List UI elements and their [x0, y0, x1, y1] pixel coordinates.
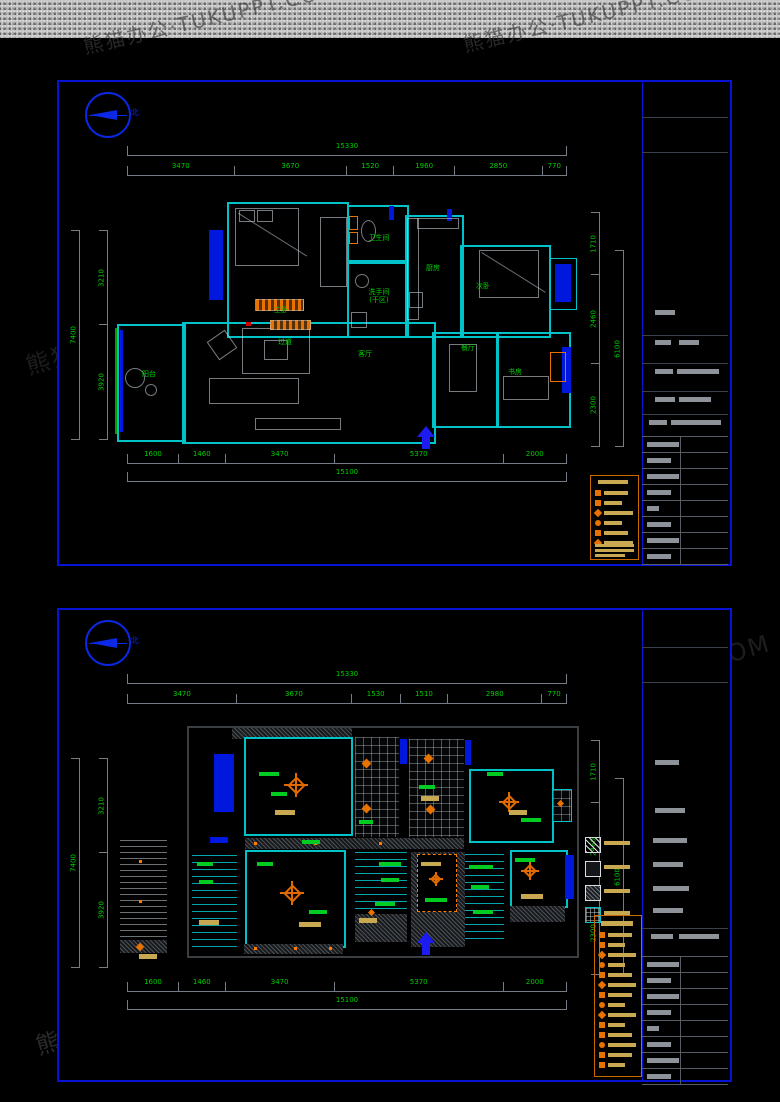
swatch-label	[604, 889, 630, 893]
dim-segment: 3920	[99, 853, 108, 968]
titleblock-text	[655, 397, 675, 402]
ceiling-balcony-louver	[120, 840, 167, 940]
dim-label: 1600	[128, 979, 178, 986]
titleblock-table-row	[642, 453, 728, 469]
dim-segment: 6100	[615, 250, 624, 447]
titleblock-text	[679, 340, 699, 345]
dim-segment: 1960	[394, 166, 455, 176]
titleblock-text	[651, 934, 673, 939]
titleblock-line	[642, 152, 728, 153]
dim-segment: 7400	[71, 758, 80, 968]
dim-segment: 3670	[235, 166, 348, 176]
balcony-table	[145, 384, 157, 396]
ceiling-note-tan	[139, 954, 157, 959]
ceiling-note	[471, 885, 489, 889]
spot-light	[139, 860, 142, 863]
label-study: 书房	[508, 368, 522, 376]
tv-static-strip	[0, 0, 780, 38]
legend-row	[595, 498, 634, 507]
dim-label: 1600	[128, 451, 178, 458]
titleblock-line	[642, 335, 728, 336]
study-cabinet	[550, 352, 566, 382]
ceiling-band	[510, 906, 565, 922]
dim-segment: 1460	[179, 982, 226, 992]
label-dry-area: 洗手间 (干区)	[369, 288, 390, 304]
dim-segment: 1520	[347, 166, 394, 176]
dim-label: 1510	[401, 691, 448, 698]
legend-box	[594, 915, 642, 1077]
bed-secondary	[479, 250, 539, 298]
tv-cabinet	[255, 418, 341, 430]
titleblock-table-row	[642, 957, 728, 973]
legend-row	[599, 1050, 637, 1059]
dim-label: 2300	[590, 396, 597, 414]
dim-label: 3470	[128, 163, 234, 170]
titleblock-table-row	[642, 1021, 728, 1037]
dim-segment: 3920	[99, 325, 108, 440]
ceiling-note	[359, 820, 373, 824]
dim-segment: 5370	[335, 982, 504, 992]
stove	[409, 292, 423, 308]
ceiling-note	[259, 772, 279, 776]
dim-segment: 3470	[226, 454, 335, 464]
legend-row	[599, 1040, 637, 1049]
dim-label: 3920	[98, 901, 105, 919]
bath-fixture	[349, 232, 358, 244]
bath-fixture	[349, 216, 358, 230]
ceiling-note-tan	[275, 810, 295, 815]
wardrobe	[320, 217, 347, 287]
swatch-solid	[585, 861, 601, 877]
chandelier-icon	[280, 881, 304, 905]
dim-segment: 3210	[99, 230, 108, 325]
legend-title	[601, 921, 633, 926]
titleblock-text	[653, 908, 683, 913]
titleblock-line	[642, 391, 728, 392]
legend-row	[599, 970, 637, 979]
dim-label: 7400	[70, 326, 77, 344]
dim-segment: 2300	[591, 364, 600, 447]
dim-label: 5370	[335, 451, 503, 458]
dim-segment: 770	[542, 694, 567, 704]
legend-row	[599, 960, 637, 969]
legend-rows	[596, 929, 640, 1070]
sofa	[209, 378, 299, 404]
dim-label: 1520	[347, 163, 393, 170]
north-compass-icon	[85, 620, 131, 666]
titleblock-line	[642, 363, 728, 364]
ceiling-entry-strips	[192, 855, 237, 950]
north-compass-icon	[85, 92, 131, 138]
legend-row	[599, 1000, 637, 1009]
dim-row-top: 3470 3670 1530 1510 2980 770	[127, 694, 567, 704]
washer	[351, 312, 367, 328]
ceiling-note	[309, 910, 327, 914]
legend-row	[599, 1020, 637, 1029]
ceiling-note	[381, 878, 399, 882]
spot-light	[254, 842, 257, 845]
dim-label: 6100	[614, 868, 621, 886]
label-bedroom2: 次卧	[476, 282, 490, 290]
ceiling-note-tan	[359, 918, 377, 923]
pillow	[257, 210, 273, 222]
legend-row	[595, 488, 634, 497]
titleblock-text	[655, 760, 679, 765]
dim-col-right-overall: 6100	[615, 250, 624, 447]
dim-label: 1460	[179, 451, 225, 458]
legend-row	[599, 990, 637, 999]
spot-light	[294, 947, 297, 950]
dim-label: 3670	[237, 691, 351, 698]
ceiling-note	[419, 785, 435, 789]
ceiling-plan-sheet: 北 15330 3470 3670 1530 1510 2980 770 160…	[57, 608, 732, 1082]
label-master: 主卧	[274, 306, 288, 314]
swatch-label	[604, 865, 630, 869]
ceiling-note-tan	[421, 862, 441, 866]
label-dining: 餐厅	[461, 344, 475, 352]
shoe-cabinet	[270, 320, 311, 330]
titleblock-table-row	[642, 1069, 728, 1085]
dim-row-bottom: 1600 1460 3470 5370 2000	[127, 982, 567, 992]
window-bath	[389, 206, 394, 220]
ceiling-note	[271, 792, 287, 796]
titleblock-text	[679, 397, 711, 402]
legend-row	[599, 940, 637, 949]
dim-label: 3670	[235, 163, 347, 170]
ceiling-tile-kitchen	[409, 739, 464, 837]
dim-label: 1960	[394, 163, 454, 170]
dim-segment: 1460	[179, 454, 226, 464]
balcony-window-line	[115, 328, 117, 434]
dim-total-bottom: 15100	[127, 1000, 567, 1010]
spot-light	[329, 947, 332, 950]
dim-segment: 5370	[335, 454, 504, 464]
titleblock-table-row	[642, 469, 728, 485]
swatch-hatch	[585, 837, 601, 853]
label-kitchen: 厨房	[426, 264, 440, 272]
dim-label: 15100	[128, 997, 566, 1004]
swatch-label	[604, 841, 630, 845]
ceiling-band	[245, 838, 464, 849]
legend-note	[595, 554, 625, 557]
dim-label: 1530	[352, 691, 400, 698]
titleblock-table-row	[642, 549, 728, 565]
dim-segment: 15100	[127, 472, 567, 482]
dim-label: 1710	[590, 235, 597, 253]
ceiling-note-tan	[199, 920, 219, 925]
dim-label: 3470	[226, 979, 334, 986]
titleblock-text	[653, 862, 683, 867]
dim-label: 3470	[226, 451, 334, 458]
dim-segment: 2980	[448, 694, 542, 704]
legend-note	[595, 549, 634, 552]
dim-segment: 1510	[401, 694, 449, 704]
north-label: 北	[131, 109, 139, 117]
legend-box	[590, 475, 639, 560]
legend-rows	[592, 487, 637, 548]
window-slot	[400, 739, 407, 764]
titleblock-line	[642, 647, 728, 648]
spot-light	[139, 900, 142, 903]
spot-light	[254, 947, 257, 950]
ceiling-note	[469, 865, 493, 869]
dim-label: 7400	[70, 854, 77, 872]
legend-title	[598, 480, 628, 484]
dim-total-bottom: 15100	[127, 472, 567, 482]
titleblock-text	[671, 420, 721, 425]
titleblock-line	[642, 682, 728, 683]
titleblock-line	[642, 928, 728, 929]
north-label: 北	[131, 637, 139, 645]
dim-segment: 15330	[127, 674, 567, 684]
dim-label: 3210	[98, 797, 105, 815]
dim-segment: 1530	[352, 694, 401, 704]
dim-segment: 2850	[455, 166, 543, 176]
dim-segment: 2000	[504, 982, 567, 992]
dim-label: 770	[542, 691, 566, 698]
dim-col-left-overall: 7400	[71, 758, 80, 968]
titleblock-text	[653, 838, 687, 843]
chandelier-icon	[521, 862, 539, 880]
titleblock-table-row	[642, 485, 728, 501]
ceiling-note-tan	[509, 810, 527, 815]
legend-row	[599, 1030, 637, 1039]
red-marker	[246, 322, 251, 326]
dim-segment: 15100	[127, 1000, 567, 1010]
dim-segment: 7400	[71, 230, 80, 440]
titleblock-line	[642, 117, 728, 118]
titleblock-text	[655, 808, 685, 813]
swatch-speckle	[585, 885, 601, 901]
dim-label: 2000	[504, 979, 566, 986]
window-slot	[210, 837, 228, 843]
dim-label: 15330	[128, 143, 566, 150]
dim-segment: 3210	[99, 758, 108, 853]
dim-row-top: 3470 3670 1520 1960 2850 770	[127, 166, 567, 176]
titleblock-table-row	[642, 1053, 728, 1069]
dim-label: 3210	[98, 269, 105, 287]
dim-segment: 1600	[127, 454, 179, 464]
titleblock-table-row	[642, 501, 728, 517]
dim-col-left-overall: 7400	[71, 230, 80, 440]
ceiling-note	[302, 840, 320, 844]
dim-label: 1710	[590, 763, 597, 781]
dim-segment: 770	[543, 166, 567, 176]
kitchen-counter-top	[417, 218, 459, 229]
window-slot	[565, 855, 574, 899]
legend-row	[599, 930, 637, 939]
window-master	[209, 230, 223, 300]
chandelier-icon	[499, 792, 519, 812]
compass-needle-icon	[90, 638, 117, 648]
dim-col-left: 3210 3920	[99, 230, 108, 440]
balcony-window-glass	[120, 330, 123, 432]
ceiling-note	[515, 858, 535, 862]
titleblock-table-row	[642, 989, 728, 1005]
ceiling-note	[257, 862, 273, 866]
window-frame	[549, 258, 577, 310]
dim-label: 15330	[128, 671, 566, 678]
dim-label: 2850	[455, 163, 542, 170]
dim-total-top: 15330	[127, 674, 567, 684]
ceiling-note	[521, 818, 541, 822]
titleblock-table	[642, 436, 728, 565]
label-balcony: 阳台	[142, 370, 156, 378]
legend-row	[599, 980, 637, 989]
floor-plan-sheet: 北 15330 3470 3670 1520 1960 2850 770 160…	[57, 80, 732, 566]
legend-row	[595, 528, 634, 537]
legend-row	[599, 1010, 637, 1019]
dim-label: 770	[543, 163, 566, 170]
dim-col-right: 1710 2460 2300	[591, 212, 600, 447]
ceiling-note	[197, 862, 213, 866]
titleblock-text	[677, 369, 719, 374]
titleblock-text	[655, 369, 673, 374]
label-bath: 卫生间	[369, 234, 390, 242]
entry-arrow-icon	[415, 426, 437, 452]
titleblock-table-row	[642, 533, 728, 549]
dim-segment: 3470	[226, 982, 335, 992]
pillow	[239, 210, 255, 222]
dim-segment: 2460	[591, 275, 600, 364]
dim-segment: 3470	[127, 166, 235, 176]
dim-total-top: 15330	[127, 146, 567, 156]
ceiling-note-tan	[521, 894, 543, 899]
legend-row	[595, 508, 634, 517]
legend-note	[595, 544, 634, 547]
titleblock-text	[655, 340, 671, 345]
bed-cover-line	[481, 252, 545, 293]
titleblock-table-row	[642, 1037, 728, 1053]
legend-row	[595, 518, 634, 527]
entry-arrow-icon	[415, 932, 437, 958]
dim-label: 2980	[448, 691, 541, 698]
titleblock-table	[642, 956, 728, 1085]
dim-col-left: 3210 3920	[99, 758, 108, 968]
titleblock-text	[649, 420, 667, 425]
dim-segment: 3470	[127, 694, 237, 704]
ceiling-note	[487, 772, 503, 776]
dim-label: 1460	[179, 979, 225, 986]
sink	[355, 274, 369, 288]
dim-label: 2000	[504, 451, 566, 458]
ceiling-note	[425, 898, 447, 902]
desk	[503, 376, 549, 400]
window-slot	[214, 754, 234, 812]
ceiling-note	[379, 862, 401, 866]
titleblock-text	[679, 934, 719, 939]
ceiling-note	[375, 902, 395, 906]
titleblock-table-row	[642, 517, 728, 533]
dim-segment: 15330	[127, 146, 567, 156]
titleblock-text	[653, 886, 689, 891]
dim-label: 3920	[98, 373, 105, 391]
chandelier-icon	[284, 773, 308, 797]
ceiling-note-tan	[421, 796, 439, 801]
label-hall: 过道	[278, 338, 292, 346]
dim-label: 15100	[128, 469, 566, 476]
ceiling-note	[199, 880, 213, 884]
spot-light	[379, 842, 382, 845]
titleblock-table-row	[642, 437, 728, 453]
dim-row-bottom: 1600 1460 3470 5370 2000	[127, 454, 567, 464]
dim-segment: 1710	[591, 740, 600, 803]
dim-segment: 1710	[591, 212, 600, 275]
chandelier-icon	[429, 872, 443, 886]
ceiling-note	[473, 910, 493, 914]
dim-segment: 1600	[127, 982, 179, 992]
legend-row	[599, 950, 637, 959]
legend-row	[599, 1060, 637, 1069]
titleblock-table-row	[642, 1005, 728, 1021]
dim-segment: 2000	[504, 454, 567, 464]
titleblock-text	[655, 310, 675, 315]
label-living: 客厅	[358, 350, 372, 358]
dim-label: 6100	[614, 340, 621, 358]
dim-segment: 3670	[237, 694, 352, 704]
window-slot	[465, 740, 471, 765]
dim-label: 5370	[335, 979, 503, 986]
ceiling-note-tan	[299, 922, 321, 927]
dim-label: 3470	[128, 691, 236, 698]
titleblock-line	[642, 414, 728, 415]
cad-sheet: 熊猫办公·TUKUPPT.COM 熊猫办公·TUKUPPT.COM 熊猫办公·T…	[0, 0, 780, 1102]
compass-needle-icon	[90, 110, 117, 120]
dim-label: 2460	[590, 310, 597, 328]
titleblock-table-row	[642, 973, 728, 989]
